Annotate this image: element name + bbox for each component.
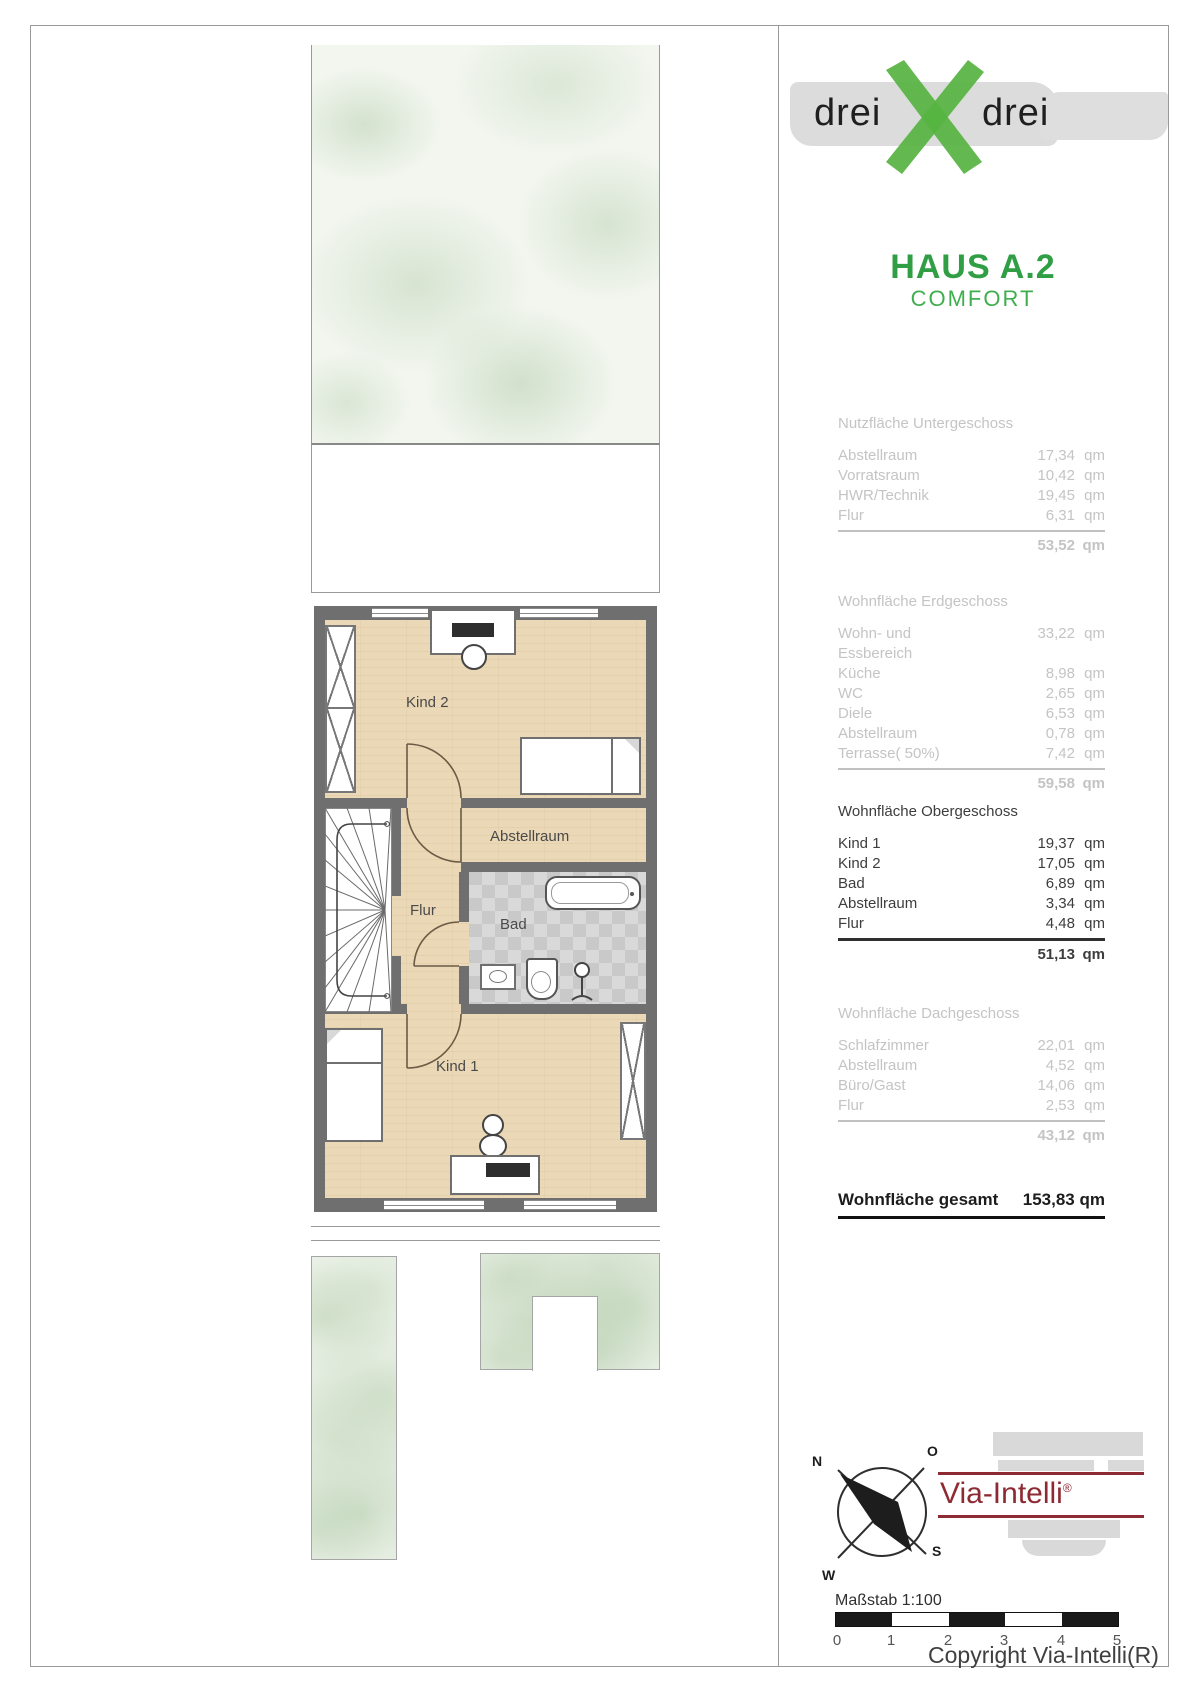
table-row: Küche8,98qm	[838, 664, 1105, 684]
scale-bar	[835, 1612, 1119, 1627]
room-label-abstellraum: Abstellraum	[490, 828, 569, 845]
room-label-kind2: Kind 2	[406, 694, 449, 711]
table-row: HWR/Technik19,45qm	[838, 486, 1105, 506]
vendor-rule-bottom	[938, 1515, 1144, 1518]
brand-x-icon	[882, 58, 986, 176]
table-separator	[838, 1120, 1105, 1122]
vendor-logo-block	[998, 1460, 1094, 1471]
blanket-fold	[625, 739, 639, 753]
logo-brush-stroke-right	[1040, 92, 1168, 140]
table-title: Wohnfläche Obergeschoss	[838, 803, 1105, 820]
scale-segment	[1062, 1613, 1118, 1626]
table-row: Terrasse( 50%)7,42qm	[838, 744, 1105, 764]
room-label-kind1: Kind 1	[436, 1058, 479, 1075]
compass-north-label: N	[812, 1453, 822, 1469]
copyright-text: Copyright Via-Intelli(R)	[928, 1642, 1159, 1669]
table-row: Kind 217,05qm	[838, 854, 1105, 874]
room-label-bad: Bad	[500, 916, 527, 933]
roof-edge-line	[311, 592, 660, 593]
page-subtitle: COMFORT	[778, 286, 1168, 312]
pillow-divider	[327, 1062, 381, 1064]
garden-notch	[532, 1296, 598, 1371]
area-table-obergeschoss: Wohnfläche Obergeschoss Kind 119,37qm Ki…	[838, 803, 1105, 965]
wardrobe-icon	[325, 625, 356, 709]
vendor-logo-block	[993, 1432, 1143, 1456]
scale-segment	[892, 1613, 948, 1626]
vendor-logo: Via-Intelli®	[930, 1420, 1170, 1570]
wardrobe-icon	[325, 707, 356, 793]
table-row: Wohn- und Essbereich33,22qm	[838, 624, 1105, 664]
page-title: HAUS A.2	[778, 248, 1168, 287]
bed-icon	[325, 1028, 383, 1142]
scale-segment	[1005, 1613, 1061, 1626]
table-total-row: 59,58qm	[838, 774, 1105, 794]
bathtub-icon	[545, 876, 641, 910]
garden-area-bottom-left	[311, 1256, 397, 1560]
blanket-fold	[327, 1030, 341, 1044]
bathtub-drain	[630, 892, 634, 896]
shower-icon	[562, 958, 602, 1006]
vendor-logo-block	[1108, 1460, 1144, 1471]
area-table-dachgeschoss: Wohnfläche Dachgeschoss Schlafzimmer22,0…	[838, 1005, 1105, 1146]
pillow-divider	[611, 739, 613, 793]
table-separator	[838, 768, 1105, 770]
table-total-row: 43,12qm	[838, 1126, 1105, 1146]
table-row: Flur4,48qm	[838, 914, 1105, 934]
site-boundary-right	[659, 445, 660, 592]
room-label-flur: Flur	[410, 902, 436, 919]
floorplan-obergeschoss: Kind 2 Abstellraum Flur Bad	[311, 592, 660, 1225]
scale-tick: 0	[833, 1632, 841, 1649]
table-row: Abstellraum4,52qm	[838, 1056, 1105, 1076]
vendor-name: Via-Intelli®	[940, 1477, 1072, 1511]
site-boundary-left	[311, 445, 312, 592]
table-total-row: 51,13qm	[838, 945, 1105, 965]
table-row: Vorratsraum10,42qm	[838, 466, 1105, 486]
table-separator	[838, 530, 1105, 532]
table-row: Flur2,53qm	[838, 1096, 1105, 1116]
desk-icon	[452, 623, 494, 637]
registered-mark: ®	[1063, 1481, 1072, 1495]
plan-body: Kind 2 Abstellraum Flur Bad	[314, 606, 657, 1212]
floorplan-sheet: Kind 2 Abstellraum Flur Bad	[0, 0, 1200, 1693]
table-row: Büro/Gast14,06qm	[838, 1076, 1105, 1096]
vendor-logo-block	[1022, 1540, 1106, 1556]
toilet-bowl	[531, 971, 551, 993]
grand-total-label: Wohnfläche gesamt	[838, 1190, 1023, 1210]
grand-total: Wohnfläche gesamt 153,83 qm	[838, 1190, 1105, 1219]
table-row: Diele6,53qm	[838, 704, 1105, 724]
monitor-icon	[486, 1163, 530, 1177]
table-row: Schlafzimmer22,01qm	[838, 1036, 1105, 1056]
table-total-row: 53,52qm	[838, 536, 1105, 556]
bed-icon	[520, 737, 641, 795]
desk-icon	[450, 1155, 540, 1195]
table-title: Wohnfläche Erdgeschoss	[838, 593, 1105, 610]
table-row: WC2,65qm	[838, 684, 1105, 704]
scale-tick: 1	[887, 1632, 895, 1649]
grand-total-underline	[838, 1216, 1105, 1219]
scale-segment	[949, 1613, 1005, 1626]
scale-label: Maßstab 1:100	[835, 1592, 942, 1610]
terrace-edge-line-2	[311, 1240, 660, 1241]
chair-icon	[461, 644, 487, 670]
garden-area-bottom-right	[480, 1253, 660, 1370]
scale-segment	[836, 1613, 892, 1626]
brand-word-right: drei	[982, 92, 1049, 135]
sink-basin	[489, 970, 507, 983]
vendor-rule-top	[938, 1472, 1144, 1475]
terrace-edge-line-1	[311, 1226, 660, 1227]
table-row: Kind 119,37qm	[838, 834, 1105, 854]
table-row: Abstellraum3,34qm	[838, 894, 1105, 914]
area-table-untergeschoss: Nutzfläche Untergeschoss Abstellraum17,3…	[838, 415, 1105, 556]
grand-total-value: 153,83 qm	[1023, 1190, 1105, 1210]
table-row: Bad6,89qm	[838, 874, 1105, 894]
area-table-erdgeschoss: Wohnfläche Erdgeschoss Wohn- und Essbere…	[838, 593, 1105, 794]
bathtub-inner	[551, 882, 629, 904]
garden-area-top	[311, 45, 660, 445]
table-row: Abstellraum0,78qm	[838, 724, 1105, 744]
table-title: Nutzfläche Untergeschoss	[838, 415, 1105, 432]
brand-word-left: drei	[814, 92, 881, 135]
toilet-icon	[526, 958, 558, 1000]
table-row: Flur6,31qm	[838, 506, 1105, 526]
table-separator	[838, 938, 1105, 941]
compass-west-label: W	[822, 1567, 836, 1583]
sink-icon	[480, 964, 516, 990]
vendor-logo-block	[1008, 1520, 1120, 1538]
wardrobe-icon	[620, 1022, 646, 1140]
table-row: Abstellraum17,34qm	[838, 446, 1105, 466]
table-title: Wohnfläche Dachgeschoss	[838, 1005, 1105, 1022]
plant-pot-icon	[482, 1114, 504, 1136]
